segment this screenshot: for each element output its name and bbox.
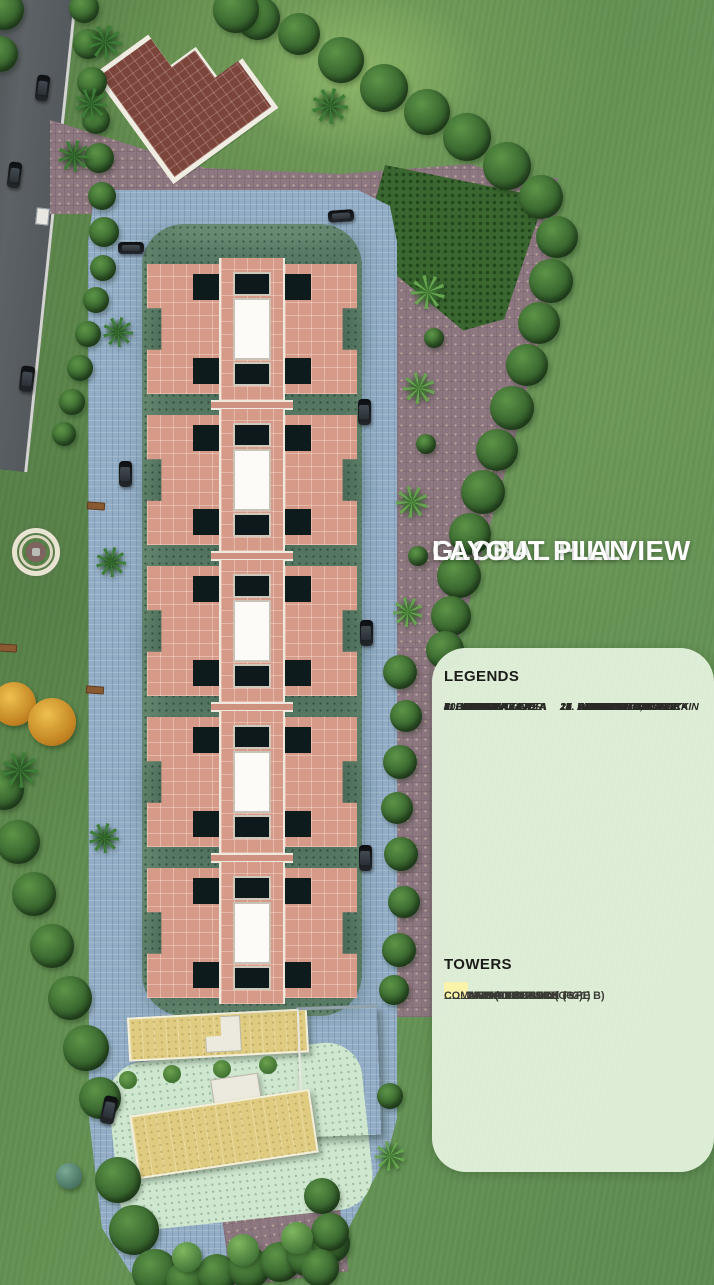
palm-tree bbox=[403, 372, 435, 404]
boundary-tree bbox=[63, 1025, 109, 1071]
tower-block bbox=[147, 711, 357, 853]
palm-tree bbox=[58, 140, 90, 172]
art-object-sculpture bbox=[32, 548, 40, 556]
boundary-tree bbox=[404, 89, 450, 135]
buffer-tree bbox=[384, 837, 418, 871]
car bbox=[118, 242, 144, 254]
palm-tree bbox=[393, 597, 423, 627]
boundary-tree bbox=[311, 1213, 349, 1251]
boundary-tree bbox=[519, 175, 563, 219]
round-tree bbox=[281, 1222, 313, 1254]
car bbox=[359, 845, 372, 871]
tower-court-south bbox=[233, 815, 271, 839]
tower-lift-core bbox=[233, 600, 271, 662]
roadside-hedge bbox=[59, 389, 85, 415]
roadside-hedge bbox=[90, 255, 116, 281]
buffer-tree bbox=[377, 1083, 403, 1109]
boundary-tree bbox=[506, 344, 548, 386]
car bbox=[119, 461, 132, 487]
boundary-tree bbox=[518, 302, 560, 344]
buffer-tree bbox=[379, 975, 409, 1005]
parking-bush bbox=[424, 328, 444, 348]
guard-booth bbox=[35, 207, 50, 225]
roadside-hedge bbox=[67, 355, 93, 381]
buffer-tree bbox=[382, 933, 416, 967]
buffer-tree bbox=[383, 745, 417, 779]
tower-court-north bbox=[233, 423, 271, 447]
palm-tree bbox=[88, 25, 122, 59]
car bbox=[358, 399, 371, 425]
flowering-tree bbox=[28, 698, 76, 746]
palm-tree bbox=[103, 317, 133, 347]
tower-block bbox=[147, 862, 357, 1004]
towers-heading: TOWERS bbox=[444, 956, 512, 973]
boundary-tree bbox=[529, 259, 573, 303]
car bbox=[360, 620, 373, 646]
roadside-hedge bbox=[52, 422, 76, 446]
tower-court-south bbox=[233, 513, 271, 537]
tower-court-north bbox=[233, 725, 271, 749]
buffer-tree bbox=[383, 655, 417, 689]
palm-tree bbox=[396, 486, 428, 518]
roadside-hedge bbox=[83, 287, 109, 313]
legend-item: 23. COMMUNITY BLOCK bbox=[560, 698, 681, 718]
tower-court-north bbox=[233, 574, 271, 598]
buffer-tree bbox=[388, 886, 420, 918]
boundary-tree bbox=[360, 64, 408, 112]
palm-tree bbox=[89, 823, 119, 853]
boundary-tree bbox=[461, 470, 505, 514]
tower-court-north bbox=[233, 876, 271, 900]
boundary-tree bbox=[318, 37, 364, 83]
boundary-tree bbox=[536, 216, 578, 258]
parking-bush bbox=[408, 546, 428, 566]
courtyard-shrub bbox=[119, 1071, 137, 1089]
boundary-tree bbox=[431, 596, 471, 636]
tower-lift-core bbox=[233, 298, 271, 360]
site-plan-canvas: GLOBAL HILLVIEW LAYOUT PLAN LEGENDS 1. G… bbox=[0, 0, 714, 1285]
tower-block bbox=[147, 560, 357, 702]
roadside-hedge bbox=[75, 321, 101, 347]
tower-court-south bbox=[233, 362, 271, 386]
parking-bush bbox=[416, 434, 436, 454]
legend-item: 11. KIDS PLAY AREA bbox=[444, 698, 547, 718]
boundary-tree bbox=[95, 1157, 141, 1203]
boundary-tree bbox=[476, 429, 518, 471]
palm-tree bbox=[411, 275, 445, 309]
bench bbox=[86, 685, 105, 694]
car bbox=[328, 209, 355, 223]
boundary-tree bbox=[304, 1178, 340, 1214]
tower-block bbox=[147, 409, 357, 551]
teal-tree bbox=[56, 1163, 82, 1189]
tower-court-south bbox=[233, 966, 271, 990]
courtyard-shrub bbox=[163, 1065, 181, 1083]
boundary-tree bbox=[278, 13, 320, 55]
palm-tree bbox=[312, 88, 348, 124]
boundary-tree bbox=[301, 1249, 339, 1285]
courtyard-shrub bbox=[213, 1060, 231, 1078]
tower-lift-core bbox=[233, 902, 271, 964]
legend-panel: LEGENDS 1. GRASS MOUND2. PAVILION3. PALM… bbox=[432, 648, 714, 1172]
boundary-tree bbox=[443, 113, 491, 161]
buffer-tree bbox=[390, 700, 422, 732]
courtyard-shrub bbox=[259, 1056, 277, 1074]
bench bbox=[87, 501, 106, 510]
tower-court-north bbox=[233, 272, 271, 296]
buffer-tree bbox=[381, 792, 413, 824]
roadside-hedge bbox=[89, 217, 119, 247]
tower-lift-core bbox=[233, 449, 271, 511]
car bbox=[6, 161, 22, 188]
roadside-hedge bbox=[88, 182, 116, 210]
boundary-tree bbox=[490, 386, 534, 430]
tower-court-south bbox=[233, 664, 271, 688]
palm-tree bbox=[375, 1141, 405, 1171]
project-title-line2: LAYOUT PLAN bbox=[432, 528, 629, 574]
boundary-tree bbox=[48, 976, 92, 1020]
tower-block bbox=[147, 258, 357, 400]
round-tree bbox=[172, 1242, 202, 1272]
boundary-tree bbox=[12, 872, 56, 916]
legend-heading: LEGENDS bbox=[444, 668, 519, 685]
round-tree bbox=[227, 1234, 259, 1266]
tower-lift-core bbox=[233, 751, 271, 813]
boundary-tree bbox=[109, 1205, 159, 1255]
palm-tree bbox=[2, 752, 38, 788]
bench bbox=[0, 643, 17, 652]
palm-tree bbox=[96, 547, 126, 577]
boundary-tree bbox=[30, 924, 74, 968]
palm-tree bbox=[75, 88, 107, 120]
car bbox=[34, 74, 50, 101]
community-centre-building bbox=[127, 1008, 309, 1061]
